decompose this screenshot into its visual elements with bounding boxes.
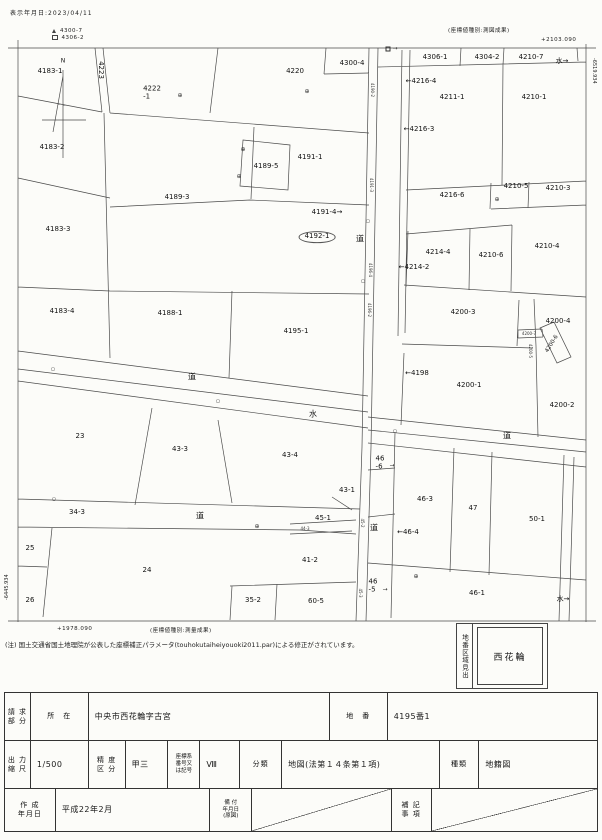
parcel-number-label: 4191-3 xyxy=(369,178,373,192)
created-date-label: 作 成 年月日 xyxy=(5,789,56,831)
left-edge-coordinate: -6445.934 xyxy=(4,574,10,600)
parcel-number-label: 4306-1 xyxy=(423,54,448,62)
survey-point-icon: ⊕ xyxy=(177,93,182,99)
accuracy-class-label: 精 度 区 分 xyxy=(89,741,126,788)
parcel-number-label: ←4214-2 xyxy=(399,264,430,272)
parcel-number-label: ←46-4 xyxy=(397,529,419,537)
remarks-label: 補 記 事 項 xyxy=(392,789,432,831)
coordinate-system-value: Ⅷ xyxy=(200,741,240,788)
area-index-value: 西花輪 xyxy=(477,627,543,685)
road-water-label: 水 xyxy=(309,411,317,420)
parcel-number-label: 4216-6 xyxy=(440,192,465,200)
parcel-number-label: 4183-4 xyxy=(50,308,75,316)
parcel-number-label: 4200-1 xyxy=(457,382,482,390)
parcel-number-label: 4200-7 xyxy=(522,332,536,336)
survey-point-icon: ○ xyxy=(51,368,55,373)
parcel-number-label: 4220 xyxy=(286,68,304,76)
parcel-number-label: 4214-4 xyxy=(426,249,451,257)
survey-point-icon: ○ xyxy=(361,280,365,285)
road-water-label: 水→ xyxy=(556,58,569,66)
survey-point-icon: ⊕ xyxy=(494,197,499,203)
parcel-number-label: 4210-6 xyxy=(479,252,504,260)
parcel-number-label: 34-3 xyxy=(69,509,85,517)
parcel-number-label: 4210-7 xyxy=(519,54,544,62)
parcel-number-label: 4210-4 xyxy=(535,243,560,251)
parcel-number-label: 4210-1 xyxy=(522,94,547,102)
parcel-number-label: 23 xyxy=(76,433,85,441)
parcel-number-label: 41-2 xyxy=(302,557,318,565)
cadastral-map-page: 表示年月日:2023/04/11 4300-74306-2 (座標値種別:測図成… xyxy=(0,0,602,840)
parcel-number-label: 50-1 xyxy=(529,516,545,524)
square-marker-icon xyxy=(386,47,391,52)
form-row-1: 請 求 部 分 所 在 中央市西花輪字古宮 地 番 4195番1 xyxy=(5,693,597,741)
parcel-number-label: 46-1 xyxy=(469,590,485,598)
kind-value: 地籍図 xyxy=(479,741,597,788)
coord-type-bottom: (座標値種別:測量成果) xyxy=(150,626,212,634)
parcel-number-label: ←4198 xyxy=(405,370,429,378)
parcel-number-label: 43-3 xyxy=(172,446,188,454)
parcel-number-label: N xyxy=(61,59,66,66)
parcel-number-label: 4300-4 xyxy=(340,60,365,68)
location-value: 中央市西花輪字古宮 xyxy=(89,693,330,740)
parcel-number-label: 4195-1 xyxy=(284,328,309,336)
output-scale-value: 1/500 xyxy=(31,741,89,788)
request-part-label: 請 求 部 分 xyxy=(5,693,31,740)
parcel-number-value: 4195番1 xyxy=(388,693,597,740)
location-label: 所 在 xyxy=(31,693,89,740)
parcel-number-label: 4200-5 xyxy=(528,344,532,358)
parcel-number-label: 26 xyxy=(26,597,35,605)
parcel-number-label: 45-1 xyxy=(315,515,331,523)
area-index-box: 地番区域見出 西花輪 xyxy=(456,623,548,689)
road-water-label: 道 xyxy=(196,513,204,522)
parcel-number-label: 60-5 xyxy=(308,598,324,606)
arrow-icon: → xyxy=(389,463,394,469)
parcel-number-label: 4304-2 xyxy=(475,54,500,62)
parcel-number-label: 45-2 xyxy=(360,518,364,527)
survey-point-icon: ○ xyxy=(393,430,397,435)
form-row-3: 作 成 年月日 平成22年2月 備 付 年月日 (原図) 補 記 事 項 xyxy=(5,789,597,831)
bottom-left-coordinate: +1978.090 xyxy=(57,626,92,632)
filed-date-empty xyxy=(252,789,392,831)
parcel-number-label: 4200-3 xyxy=(451,309,476,317)
survey-point-icon: ⊕ xyxy=(236,174,241,180)
parcel-number-label: 43-4 xyxy=(282,452,298,460)
parcel-number-label: 4210-3 xyxy=(546,185,571,193)
parcel-number-label: 4191-4→ xyxy=(312,209,343,217)
parcel-number-label: 地 番 xyxy=(330,693,388,740)
parcel-number-label: 4196-4 xyxy=(368,263,372,277)
parcel-number-label: 43-1 xyxy=(339,487,355,495)
form-row-2: 出 力 縮 尺 1/500 精 度 区 分 甲三 座標系 番号又 は記号 Ⅷ 分… xyxy=(5,741,597,789)
parcel-number-label: 4183-2 xyxy=(40,144,65,152)
road-water-label: 道 xyxy=(356,236,364,245)
remarks-empty xyxy=(432,789,597,831)
classification-value: 地図(法第１４条第１項) xyxy=(282,741,439,788)
created-date-value: 平成22年2月 xyxy=(56,789,211,831)
certificate-form: 請 求 部 分 所 在 中央市西花輪字古宮 地 番 4195番1 出 力 縮 尺… xyxy=(4,692,598,832)
parcel-number-label: 4222 -1 xyxy=(143,85,161,100)
survey-point-icon: ⊕ xyxy=(254,524,259,530)
parcel-number-label: 4200-2 xyxy=(550,402,575,410)
arrow-icon: → xyxy=(382,587,387,593)
parcel-number-label: 45-3 xyxy=(358,588,362,597)
parcel-number-label: 4183-3 xyxy=(46,226,71,234)
parcel-number-label: 4192-1 xyxy=(299,231,336,243)
accuracy-class-value: 甲三 xyxy=(126,741,169,788)
parcel-number-label: 4190-2 xyxy=(370,83,374,97)
survey-point-icon: ⊕ xyxy=(304,89,309,95)
classification-label: 分類 xyxy=(240,741,282,788)
survey-point-icon: ⊕ xyxy=(413,574,418,580)
parcel-number-label: 4191-1 xyxy=(298,154,323,162)
parcel-number-label: 4189-3 xyxy=(165,194,190,202)
output-scale-label: 出 力 縮 尺 xyxy=(5,741,31,788)
survey-point-icon: ○ xyxy=(216,400,220,405)
survey-point-icon: ⊕ xyxy=(240,147,245,153)
filed-date-label: 備 付 年月日 (原図) xyxy=(210,789,252,831)
parcel-number-label: 44-3 xyxy=(300,527,309,531)
parcel-number-label: 4189-5 xyxy=(254,163,279,171)
road-water-label: 道 xyxy=(503,433,511,442)
parcel-number-label: 4183-1 xyxy=(38,68,63,76)
road-water-label: 道 xyxy=(370,525,378,534)
survey-point-icon: ○ xyxy=(366,220,370,225)
road-water-label: 水→ xyxy=(557,596,570,604)
parcel-number-label: 25 xyxy=(26,545,35,553)
parcel-number-label: 46-3 xyxy=(417,496,433,504)
parcel-number-label: ←4216-3 xyxy=(404,126,435,134)
parcel-number-label: 4223 xyxy=(96,61,104,79)
parcel-number-label: ←4216-4 xyxy=(406,78,437,86)
correction-note: (注) 国土交通省国土地理院が公表した座標補正パラメータ(touhokutaih… xyxy=(5,639,445,649)
parcel-number-label: 35-2 xyxy=(245,597,261,605)
coordinate-system-label: 座標系 番号又 は記号 xyxy=(168,741,200,788)
parcel-number-label: 4200-4 xyxy=(546,318,571,326)
kind-label: 種類 xyxy=(440,741,480,788)
arrow-icon: → xyxy=(392,46,397,52)
parcel-number-label: 24 xyxy=(143,567,152,575)
parcel-number-label: 46 -5 xyxy=(369,578,378,593)
parcel-number-label: 4211-1 xyxy=(440,94,465,102)
parcel-number-label: 46 -6 xyxy=(376,455,385,470)
area-index-title: 地番区域見出 xyxy=(457,624,473,688)
parcel-number-label: 4196-2 xyxy=(367,303,371,317)
survey-point-icon: ○ xyxy=(52,498,56,503)
parcel-number-label: 4188-1 xyxy=(158,310,183,318)
road-water-label: 道 xyxy=(188,374,196,383)
parcel-number-label: 4210-5 xyxy=(504,183,529,191)
right-edge-coordinate: -6519.934 xyxy=(591,58,597,84)
parcel-number-label: 47 xyxy=(469,505,478,513)
